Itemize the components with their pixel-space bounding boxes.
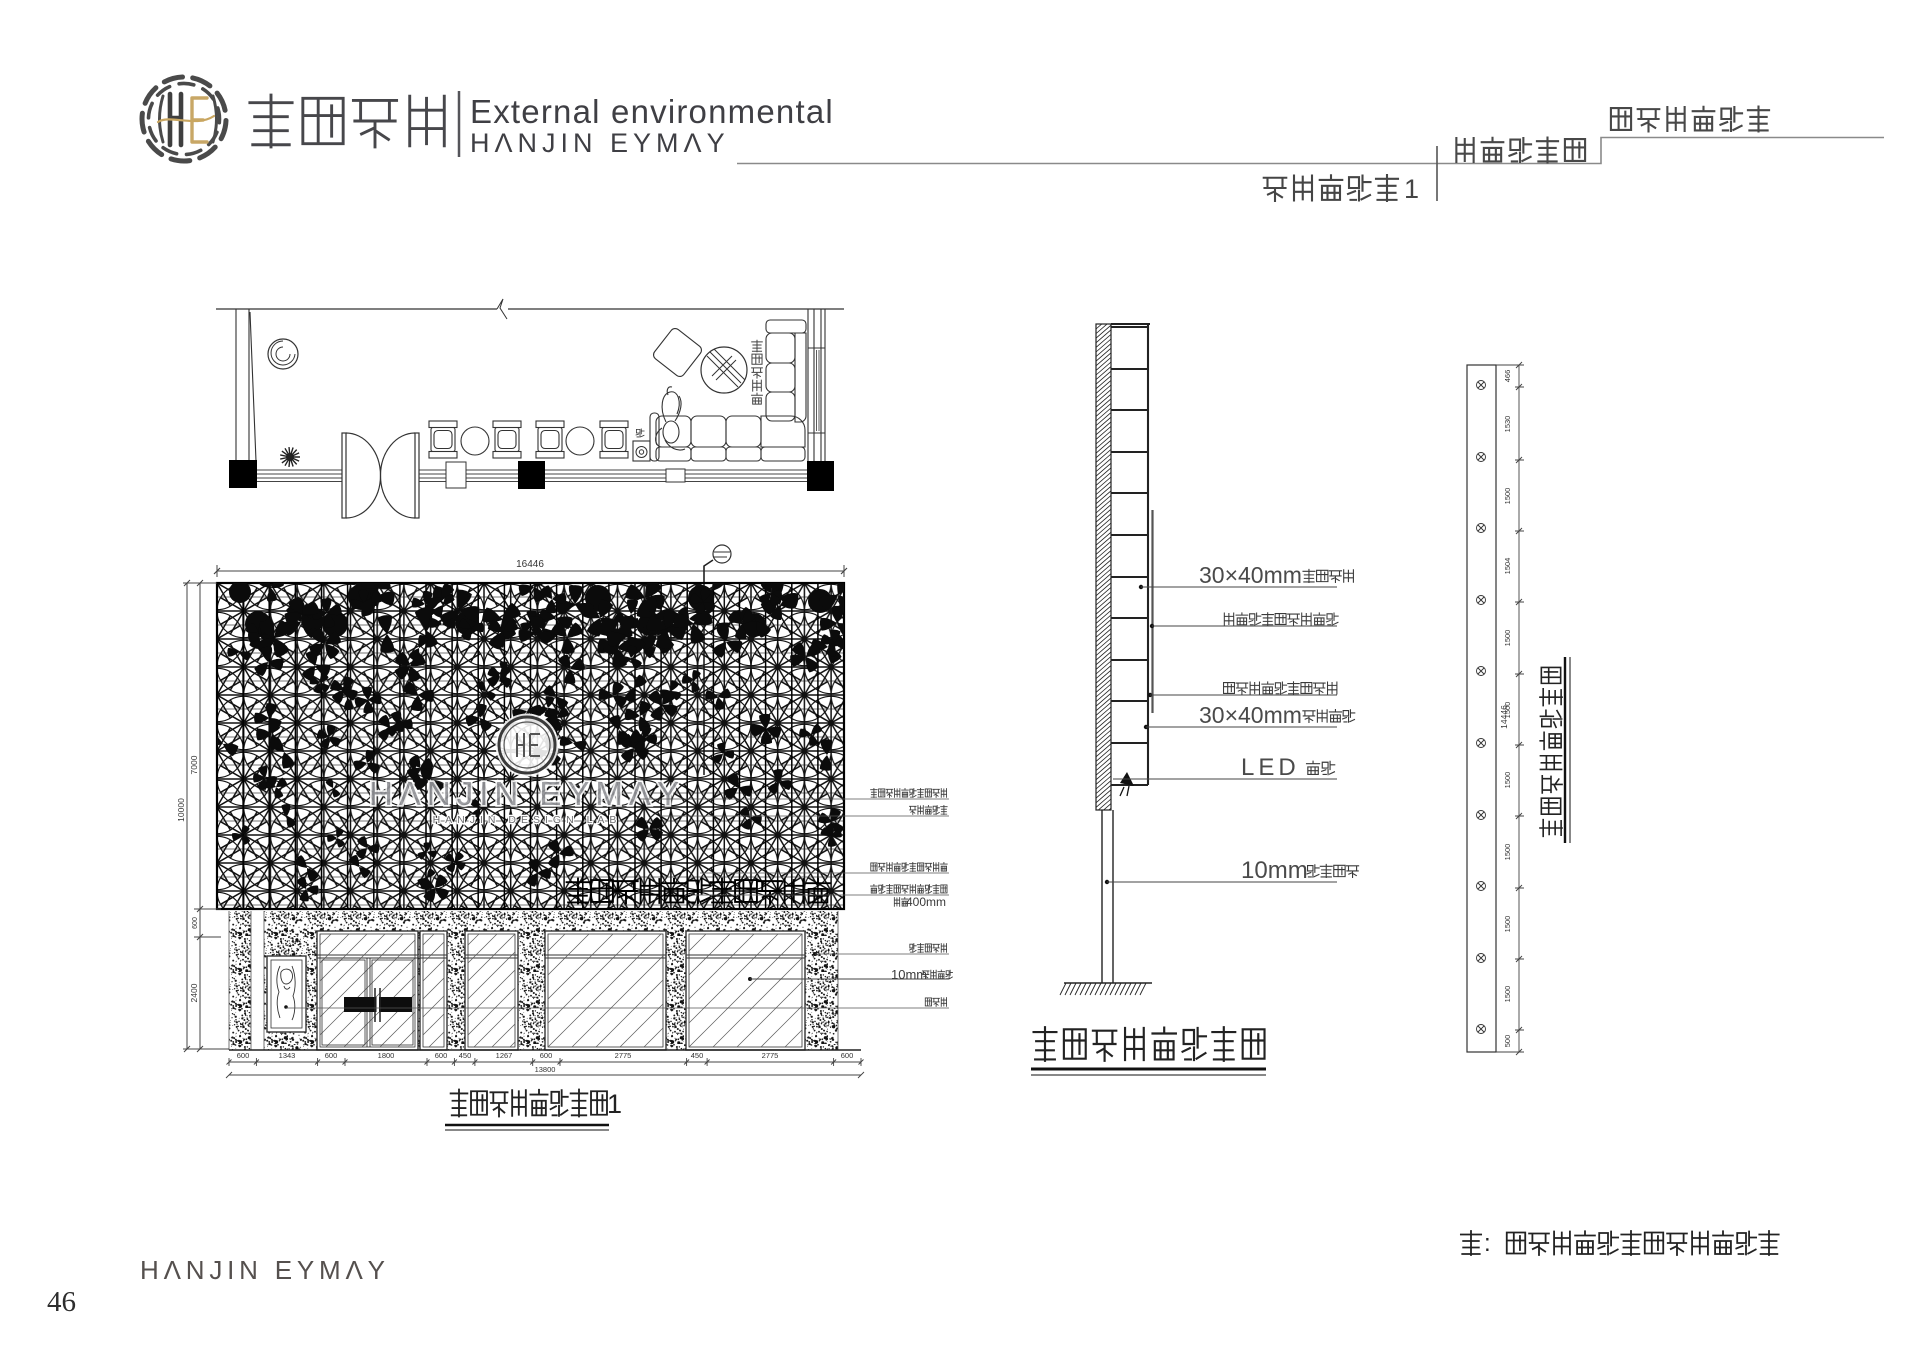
svg-text:7000: 7000 [189,755,199,774]
svg-text:600: 600 [435,1051,448,1060]
svg-text:1500: 1500 [1503,844,1512,861]
svg-text:600: 600 [325,1051,338,1060]
svg-text:1800: 1800 [378,1051,395,1060]
svg-text:10mm: 10mm [891,967,927,982]
svg-text:600: 600 [192,917,199,929]
svg-text:External environmental: External environmental [470,93,834,130]
svg-text:600: 600 [841,1051,854,1060]
svg-text:10mm: 10mm [1241,857,1308,884]
svg-text:30×40mm: 30×40mm [1199,702,1302,728]
svg-text:HΛNJIN EYMΛY: HΛNJIN EYMΛY [140,1255,390,1285]
svg-text:HANJIN DESIGN LAB: HANJIN DESIGN LAB [433,814,622,826]
svg-text:400mm: 400mm [906,895,946,909]
svg-text::: : [1484,1230,1491,1257]
svg-text:16446: 16446 [516,559,544,570]
svg-text:1500: 1500 [1503,630,1512,647]
svg-text:2775: 2775 [615,1051,632,1060]
svg-text:13800: 13800 [535,1065,556,1074]
svg-text:1267: 1267 [496,1051,513,1060]
svg-text:1504: 1504 [1503,558,1512,575]
svg-text:450: 450 [691,1051,704,1060]
svg-text:LED: LED [1241,754,1300,781]
svg-text:600: 600 [540,1051,553,1060]
svg-text:HΛNJIN EYMΛY: HΛNJIN EYMΛY [470,128,730,158]
svg-text:1500: 1500 [1503,772,1512,789]
svg-text:500: 500 [1503,1035,1512,1048]
svg-text:1500: 1500 [1503,916,1512,933]
svg-text:30×40mm: 30×40mm [1199,562,1302,588]
svg-text:2400: 2400 [189,983,199,1002]
svg-text:10000: 10000 [176,798,186,822]
svg-text:1: 1 [1404,174,1419,204]
svg-text:1530: 1530 [1503,416,1512,433]
svg-text:14446: 14446 [1499,705,1509,729]
svg-text:1500: 1500 [1503,986,1512,1003]
svg-text:46: 46 [47,1286,76,1318]
svg-text:1500: 1500 [1503,488,1512,505]
svg-text:2775: 2775 [762,1051,779,1060]
svg-text:1343: 1343 [279,1051,296,1060]
svg-text:466: 466 [1503,370,1512,383]
svg-text:450: 450 [459,1051,472,1060]
svg-text:600: 600 [237,1051,250,1060]
svg-text:HΛNJIN EYMΛY: HΛNJIN EYMΛY [369,775,685,812]
svg-text:1: 1 [607,1089,622,1119]
